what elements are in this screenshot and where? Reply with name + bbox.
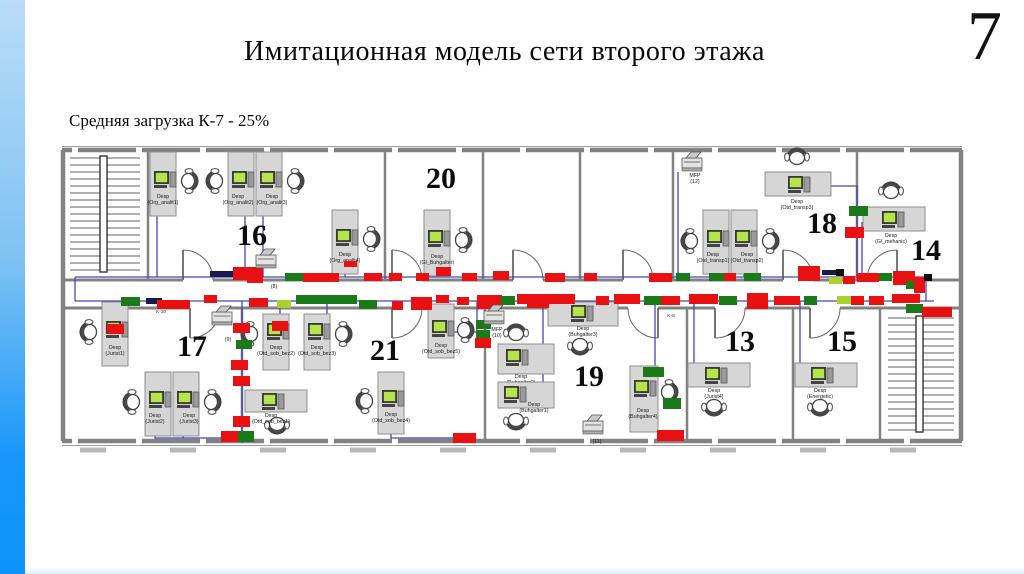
- floor-plan-network-diagram: Desp(Org_analit1)Desp(Org_analit2)Desp(O…: [0, 0, 1024, 574]
- computer-icon: [177, 391, 199, 408]
- load-marker: [906, 304, 923, 313]
- load-marker: [157, 300, 190, 309]
- load-marker: [236, 340, 252, 349]
- chair-icon: [207, 169, 222, 194]
- load-marker: [879, 273, 892, 281]
- load-marker: [501, 296, 515, 305]
- workstation: Desp(Otd_sob_bez4): [357, 372, 410, 434]
- load-marker: [233, 376, 250, 386]
- computer-icon: [506, 349, 528, 366]
- workstation: Desp(Jurist3): [173, 372, 220, 436]
- load-marker: [247, 275, 263, 283]
- load-marker: [836, 269, 844, 276]
- load-marker: [924, 274, 932, 281]
- chair-icon: [456, 228, 471, 253]
- chair-icon: [357, 389, 372, 414]
- workstation: Desp(Energetic): [795, 363, 857, 415]
- chair-icon: [504, 325, 529, 340]
- door-arc: [183, 250, 213, 280]
- workstation-label: (Gl_mehanic): [875, 239, 907, 245]
- workstation-label: (Otd_sob_bez4): [372, 418, 410, 424]
- load-marker: [238, 431, 254, 442]
- room-number: 18: [807, 207, 837, 240]
- workstation-label: (Otd_transp1): [697, 258, 730, 264]
- printer-label: (12): [690, 179, 700, 185]
- workstation: Desp(Org_analit3): [256, 152, 303, 216]
- computer-icon: [154, 171, 176, 188]
- computer-icon: [336, 229, 358, 246]
- printer-label: (10): [492, 333, 502, 339]
- load-marker: [922, 307, 952, 317]
- presentation-slide: Имитационная модель сети второго этажа 7…: [0, 0, 1024, 574]
- computer-icon: [232, 171, 254, 188]
- door-arc: [628, 308, 658, 338]
- workstation-label: (Otd_transp2): [731, 258, 764, 264]
- chair-icon: [879, 183, 904, 198]
- load-marker: [719, 296, 737, 305]
- load-marker: [869, 296, 884, 305]
- workstation-label: (Otd_sob_bez3): [298, 351, 336, 357]
- load-marker: [204, 295, 217, 303]
- load-marker: [457, 297, 469, 305]
- load-marker: [121, 297, 140, 306]
- chair-icon: [458, 318, 473, 343]
- load-marker: [231, 360, 248, 370]
- load-marker: [614, 294, 640, 304]
- room-number: 15: [827, 325, 857, 358]
- door-arc: [623, 250, 653, 280]
- load-marker: [643, 367, 664, 377]
- load-marker: [462, 273, 477, 281]
- computer-icon: [262, 393, 284, 410]
- workstation: Desp(Otd_transp1): [682, 210, 729, 274]
- load-marker: [545, 273, 565, 282]
- load-marker: [436, 267, 451, 276]
- load-marker: [649, 273, 672, 282]
- load-marker: [689, 294, 718, 304]
- printer-label: (9): [225, 337, 232, 343]
- computer-icon: [882, 211, 904, 228]
- load-marker: [272, 321, 288, 331]
- room-number: 13: [725, 325, 755, 358]
- chair-icon: [124, 390, 139, 415]
- chair-icon: [763, 229, 778, 254]
- load-marker: [476, 330, 490, 338]
- computer-icon: [707, 230, 729, 247]
- workstation-label: (Jurist4): [704, 394, 723, 400]
- workstation: Desp(Buhgalter2): [498, 325, 554, 386]
- load-marker: [584, 273, 597, 281]
- load-marker: [416, 273, 429, 281]
- workstation-label: (Jurist2): [145, 419, 164, 425]
- chair-icon: [81, 320, 96, 345]
- load-marker: [359, 300, 377, 309]
- workstation-label: (Jurist1): [105, 351, 124, 357]
- printer-label: (11): [592, 439, 601, 445]
- workstation: Desp(Buhgalter1): [498, 382, 554, 429]
- room-number: 16: [237, 219, 267, 252]
- workstation-label: (Buhgalter3): [568, 332, 597, 338]
- load-marker: [724, 273, 736, 281]
- printer-icon: (9): [212, 306, 232, 343]
- load-marker: [837, 296, 851, 304]
- load-marker: [596, 296, 609, 305]
- chair-icon: [364, 227, 379, 252]
- load-marker: [804, 296, 817, 305]
- load-marker: [657, 430, 684, 441]
- load-marker: [233, 323, 250, 333]
- switch-label: K-8: [667, 313, 675, 319]
- load-marker: [644, 296, 661, 305]
- chair-icon: [568, 339, 593, 354]
- computer-icon: [382, 390, 404, 407]
- load-marker: [774, 296, 800, 305]
- computer-icon: [788, 176, 810, 193]
- workstation: Desp(Otd_sob_bez5): [422, 304, 473, 358]
- workstation: Desp(Otd_transp2): [731, 210, 778, 274]
- chair-icon: [702, 400, 727, 415]
- load-marker: [389, 273, 402, 281]
- room-number: 19: [574, 360, 604, 393]
- load-marker: [914, 277, 925, 293]
- load-marker: [744, 273, 761, 281]
- load-marker: [747, 293, 768, 309]
- chair-icon: [205, 390, 220, 415]
- load-marker: [436, 295, 449, 303]
- load-marker: [663, 398, 681, 409]
- chair-icon: [808, 400, 833, 415]
- room-number: 17: [177, 330, 207, 363]
- load-marker: [344, 261, 357, 267]
- workstation-label: (Otd_sob_bez2): [257, 351, 295, 357]
- chair-icon: [182, 169, 197, 194]
- load-marker: [676, 273, 690, 281]
- load-marker: [851, 296, 864, 305]
- load-marker: [527, 299, 549, 308]
- workstation: Desp(Org_analit1): [148, 152, 197, 216]
- computer-icon: [811, 367, 833, 384]
- load-marker: [277, 300, 291, 308]
- printer-label: (8): [271, 284, 278, 290]
- load-marker: [411, 297, 432, 310]
- load-marker: [303, 273, 339, 282]
- computer-icon: [428, 230, 450, 247]
- workstation: Desp(Jurist4): [688, 363, 750, 415]
- workstation-label: (Buhgalter1): [519, 408, 548, 414]
- load-marker: [709, 273, 724, 281]
- load-marker: [857, 273, 879, 282]
- load-marker: [392, 301, 403, 310]
- chair-icon: [336, 322, 351, 347]
- workstation: Desp(Jurist2): [124, 372, 171, 436]
- workstation-label: (Buhgalter4): [628, 414, 657, 420]
- workstation: Desp(Otd_sob_bez3): [298, 314, 351, 370]
- chair-icon: [682, 229, 697, 254]
- computer-icon: [504, 386, 526, 403]
- workstation-label: (Org_analit2): [223, 200, 254, 206]
- load-marker: [453, 433, 476, 443]
- load-marker: [849, 206, 868, 216]
- computer-icon: [705, 367, 727, 384]
- load-marker: [233, 416, 250, 427]
- load-marker: [843, 276, 855, 284]
- switch-label: K-10: [156, 309, 166, 315]
- room-number: 20: [426, 162, 456, 195]
- chair-icon: [504, 414, 529, 429]
- door-arc: [513, 250, 543, 280]
- computer-icon: [634, 380, 656, 397]
- load-marker: [296, 295, 357, 304]
- computer-icon: [571, 305, 593, 322]
- workstation-label: (Otd_sob_bez1): [252, 419, 290, 425]
- load-marker: [892, 294, 920, 303]
- load-marker: [364, 273, 382, 281]
- workstation: Desp(Gl_Buhgalter): [420, 210, 471, 276]
- computer-icon: [308, 323, 330, 340]
- load-marker: [845, 227, 864, 238]
- load-marker: [798, 266, 820, 281]
- load-marker: [107, 324, 124, 334]
- workstation-label: (Jurist3): [179, 419, 198, 425]
- workstation-label: (Otd_sob_bez5): [422, 349, 460, 355]
- printer-icon: MFP(12): [682, 152, 702, 185]
- load-marker: [249, 298, 268, 307]
- workstation: Desp(Org_analit2): [207, 152, 254, 216]
- computer-icon: [432, 320, 454, 337]
- load-marker: [661, 296, 680, 305]
- workstation-label: (Org_analit3): [257, 200, 288, 206]
- workstation-label: (Energetic): [807, 394, 833, 400]
- room-number: 14: [911, 234, 941, 267]
- workstation: Desp(Otd_transp3): [765, 149, 831, 211]
- load-marker: [285, 273, 303, 281]
- load-marker: [221, 431, 238, 442]
- stairs: [888, 316, 954, 432]
- computer-icon: [735, 230, 757, 247]
- workstation-label: (Org_analit1): [148, 200, 179, 206]
- workstation: Desp(Buhgalter3): [548, 302, 618, 354]
- computer-icon: [260, 171, 282, 188]
- chair-icon: [288, 169, 303, 194]
- workstation: Desp(Otd_sob_bez1): [245, 390, 307, 433]
- desk: [304, 314, 330, 370]
- workstation-label: (Gl_Buhgalter): [420, 260, 455, 266]
- load-marker: [475, 338, 491, 348]
- room-number: 21: [370, 334, 400, 367]
- computer-icon: [149, 391, 171, 408]
- load-marker: [493, 271, 509, 280]
- load-marker: [829, 277, 842, 284]
- stairs: [70, 156, 140, 272]
